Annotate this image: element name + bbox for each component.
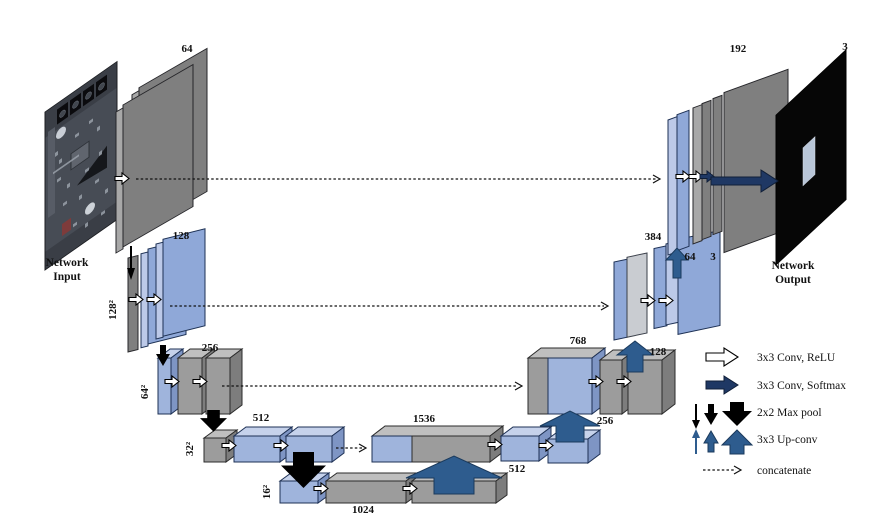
label-dec-row2-upconv: 128 — [650, 346, 667, 358]
box-front-face — [206, 358, 230, 414]
label-dec-row3-upconv: 256 — [597, 415, 614, 427]
feature-sheet — [614, 259, 627, 340]
concat-blue-front — [372, 436, 412, 462]
legend-concatenate-label: concatenate — [757, 465, 811, 477]
box-side-face — [662, 350, 675, 414]
feature-sheet — [163, 229, 205, 336]
legend-conv-relu-label: 3x3 Conv, ReLU — [757, 352, 836, 364]
box-front-face — [280, 481, 318, 503]
label-resolution-64: 64² — [139, 384, 151, 399]
output-caption-line2: Output — [775, 274, 811, 286]
box-front-face — [548, 439, 588, 463]
unet-architecture-diagram: 64 128 256 512 1024 1536 512 768 256 384… — [0, 0, 888, 529]
label-dec-row4-conv: 512 — [509, 463, 526, 475]
box-top-face — [326, 473, 417, 481]
label-dec-row2-concat: 384 — [645, 231, 662, 243]
legend-conv-softmax-label: 3x3 Conv, Softmax — [757, 380, 846, 392]
feature-sheet — [713, 95, 722, 234]
box-front-face — [501, 436, 539, 461]
input-caption-line2: Input — [53, 271, 81, 283]
box-front-face — [234, 436, 280, 462]
box-front-face — [600, 360, 622, 414]
label-bottleneck-channels: 1024 — [352, 504, 375, 516]
box-front-face — [178, 358, 202, 414]
legend-max-pool-label: 2x2 Max pool — [757, 407, 822, 419]
label-enc-row4-channels: 512 — [253, 412, 270, 424]
label-enc-row1-channels: 64 — [182, 43, 194, 55]
label-dec-row4-concat: 1536 — [413, 413, 436, 425]
label-enc-row3-channels: 256 — [202, 342, 219, 354]
input-caption-line1: Network — [46, 257, 89, 269]
box-front-face — [158, 358, 171, 414]
feature-sheet-edge — [668, 117, 677, 255]
label-dec-row3-concat: 768 — [570, 335, 587, 347]
concat-gray-front — [528, 358, 548, 414]
concat-gray-sheet — [627, 253, 647, 337]
label-dec-row2-conv: 64 — [685, 251, 697, 263]
concat-blue-front — [548, 358, 592, 414]
label-resolution-128: 128² — [107, 299, 119, 320]
output-caption-line1: Network — [772, 260, 815, 272]
label-dec-row2-out: 3 — [710, 251, 716, 263]
label-resolution-32: 32² — [184, 441, 196, 456]
label-resolution-16: 16² — [261, 484, 273, 499]
label-output-channels: 3 — [842, 41, 848, 53]
feature-sheet-edge — [156, 242, 163, 339]
legend-up-conv-label: 3x3 Up-conv — [757, 434, 818, 446]
box-top-face — [372, 426, 503, 436]
feature-sheet — [654, 246, 667, 329]
box-front-face — [204, 438, 226, 462]
box-side-face — [230, 349, 242, 414]
label-enc-row2-channels: 128 — [173, 230, 190, 242]
label-dec-row1-concat: 192 — [730, 43, 747, 55]
box-front-face — [326, 481, 406, 503]
diagram-canvas: 64 128 256 512 1024 1536 512 768 256 384… — [0, 0, 888, 529]
